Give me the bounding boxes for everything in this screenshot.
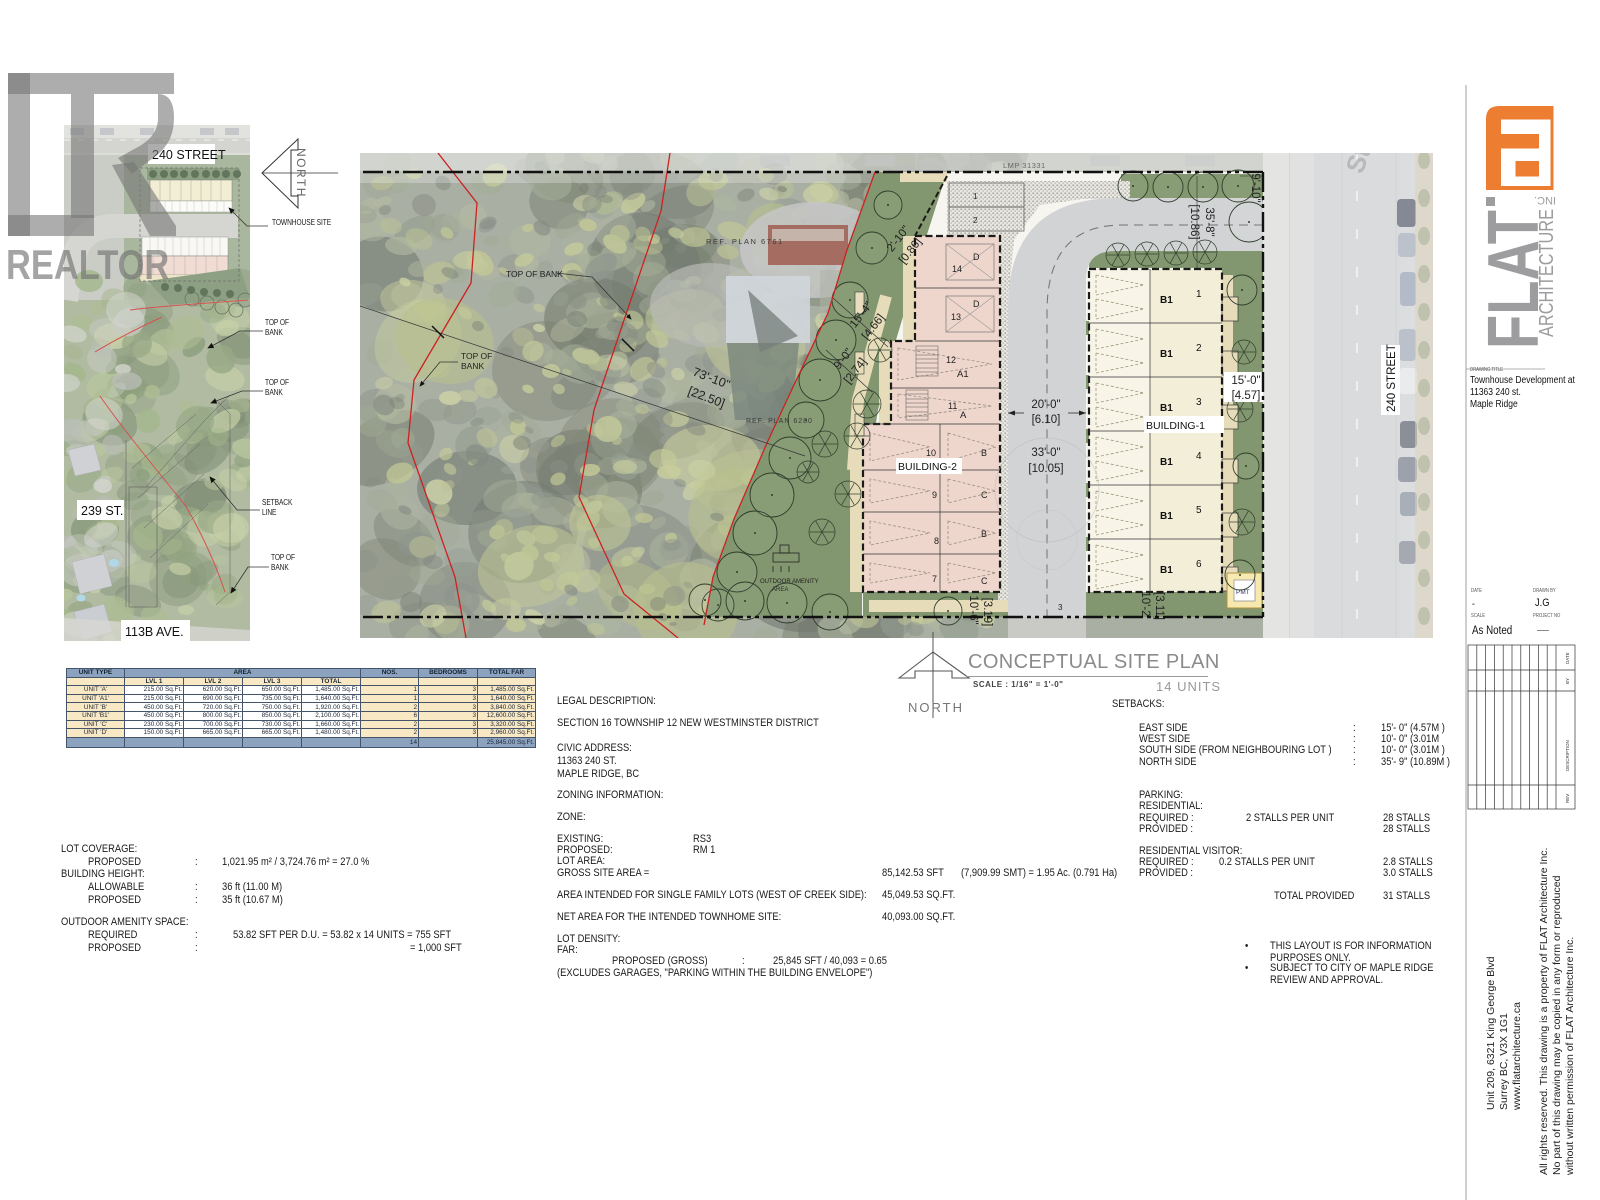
svg-text:DATE: DATE xyxy=(1565,652,1570,664)
svg-text:DESCRIPTION: DESCRIPTION xyxy=(1565,740,1570,771)
svg-text:REV: REV xyxy=(1565,794,1570,803)
svg-text:NORTH: NORTH xyxy=(294,148,308,198)
svg-text:BY: BY xyxy=(1565,678,1570,684)
svg-text:Surrey BC, V3X 1G1: Surrey BC, V3X 1G1 xyxy=(1498,1013,1510,1110)
svg-text:No part of this drawing may be: No part of this drawing may be copied in… xyxy=(1551,875,1563,1175)
svg-text:Unit 209, 6321 King George Blv: Unit 209, 6321 King George Blvd xyxy=(1485,956,1497,1110)
svg-text:All rights reserved. This draw: All rights reserved. This drawing is a p… xyxy=(1538,848,1550,1175)
svg-text:INC.: INC. xyxy=(1534,194,1556,206)
svg-text:www.flatarchitecture.ca: www.flatarchitecture.ca xyxy=(1511,1002,1523,1111)
svg-text:ARCHITECTURE: ARCHITECTURE xyxy=(1536,209,1558,337)
svg-text:without written permission of: without written permission of FLAT Archi… xyxy=(1564,937,1576,1176)
